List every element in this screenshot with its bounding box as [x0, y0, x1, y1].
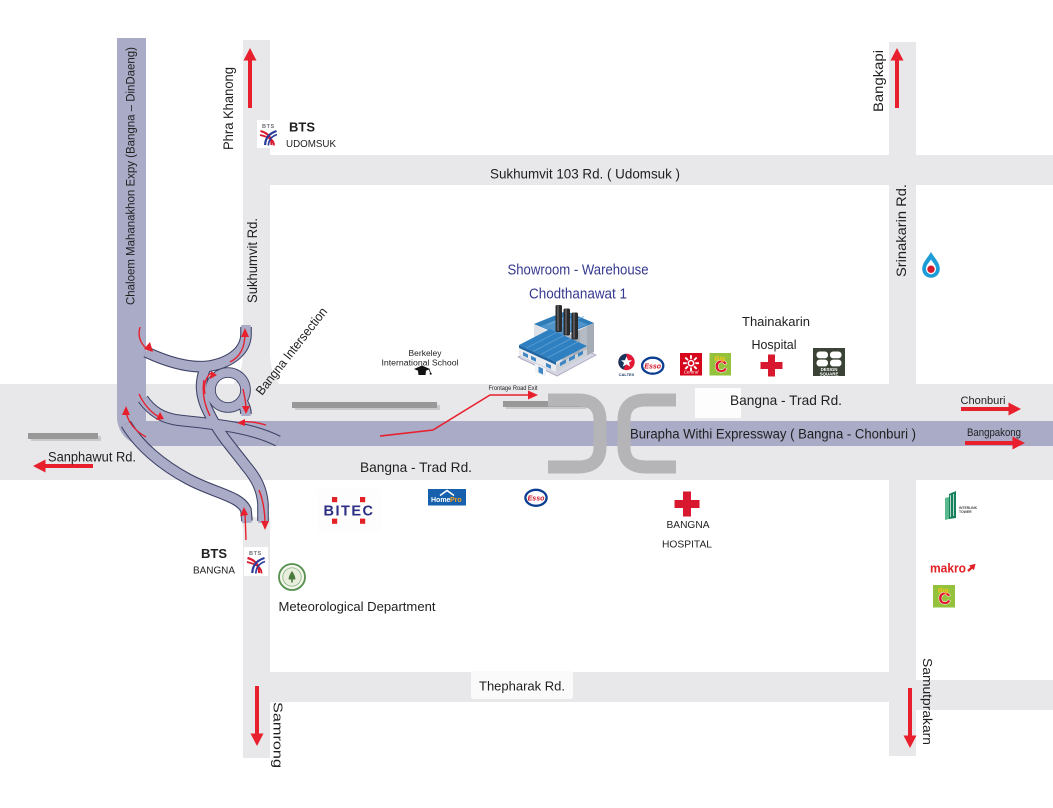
- svg-text:HOSPITAL: HOSPITAL: [662, 539, 712, 551]
- svg-text:Bangpakong: Bangpakong: [967, 427, 1021, 439]
- svg-text:Chodthanawat 1: Chodthanawat 1: [529, 286, 627, 303]
- svg-text:Chaloem Mahanakhon Expy (Ba: Chaloem Mahanakhon Expy (Bangna – DinDae…: [126, 47, 138, 305]
- svg-text:Berkeley: Berkeley: [409, 349, 442, 358]
- svg-text:BTS: BTS: [289, 120, 315, 135]
- svg-text:Pro: Pro: [450, 497, 462, 504]
- svg-text:Chonburi: Chonburi: [961, 395, 1006, 407]
- svg-text:Big: Big: [715, 356, 726, 363]
- svg-text:TOWER: TOWER: [959, 510, 972, 514]
- svg-text:Burapha Withi Expressway ( Ban: Burapha Withi Expressway ( Bangna - Chon…: [630, 427, 916, 442]
- svg-text:SQUARE: SQUARE: [820, 371, 839, 376]
- svg-text:BITEC: BITEC: [324, 504, 375, 520]
- svg-text:BANGNA: BANGNA: [667, 519, 710, 531]
- svg-text:makro: makro: [930, 562, 966, 576]
- svg-text:Sanphawut Rd.: Sanphawut Rd.: [48, 450, 136, 465]
- svg-text:Bangkapi: Bangkapi: [871, 50, 886, 112]
- svg-text:Bangna - Trad Rd.: Bangna - Trad Rd.: [360, 459, 472, 475]
- svg-text:Phra Khanong: Phra Khanong: [221, 67, 236, 150]
- svg-text:International School: International School: [382, 359, 459, 368]
- svg-text:Samrong: Samrong: [271, 702, 286, 768]
- svg-text:Esso: Esso: [644, 364, 661, 371]
- svg-text:BTS: BTS: [249, 551, 262, 557]
- svg-text:Thepharak Rd.: Thepharak Rd.: [479, 680, 565, 694]
- svg-text:Showroom - Warehouse: Showroom - Warehouse: [508, 262, 649, 279]
- svg-text:Meteorological Department: Meteorological Department: [279, 599, 436, 614]
- svg-text:Srinakarin Rd.: Srinakarin Rd.: [894, 184, 909, 277]
- svg-text:Samutprakarn: Samutprakarn: [920, 658, 935, 745]
- svg-text:Big: Big: [938, 588, 949, 595]
- svg-text:Central: Central: [684, 370, 700, 375]
- svg-text:BTS: BTS: [262, 124, 275, 130]
- svg-text:BANGNA: BANGNA: [193, 565, 235, 577]
- svg-text:Frontage Road Exit: Frontage Road Exit: [489, 385, 538, 392]
- svg-text:UDOMSUK: UDOMSUK: [286, 138, 336, 150]
- svg-text:BTS: BTS: [201, 546, 227, 561]
- svg-text:CALTEX: CALTEX: [619, 372, 635, 377]
- svg-text:Esso: Esso: [528, 496, 545, 503]
- svg-text:Home: Home: [431, 497, 451, 504]
- svg-text:Sukhumvit Rd.: Sukhumvit Rd.: [245, 218, 260, 303]
- svg-text:Hospital: Hospital: [752, 338, 797, 352]
- svg-text:Sukhumvit 103 Rd. ( Udomsuk ): Sukhumvit 103 Rd. ( Udomsuk ): [490, 166, 680, 182]
- svg-text:Thainakarin: Thainakarin: [742, 315, 810, 329]
- svg-text:Bangna - Trad Rd.: Bangna - Trad Rd.: [730, 392, 842, 408]
